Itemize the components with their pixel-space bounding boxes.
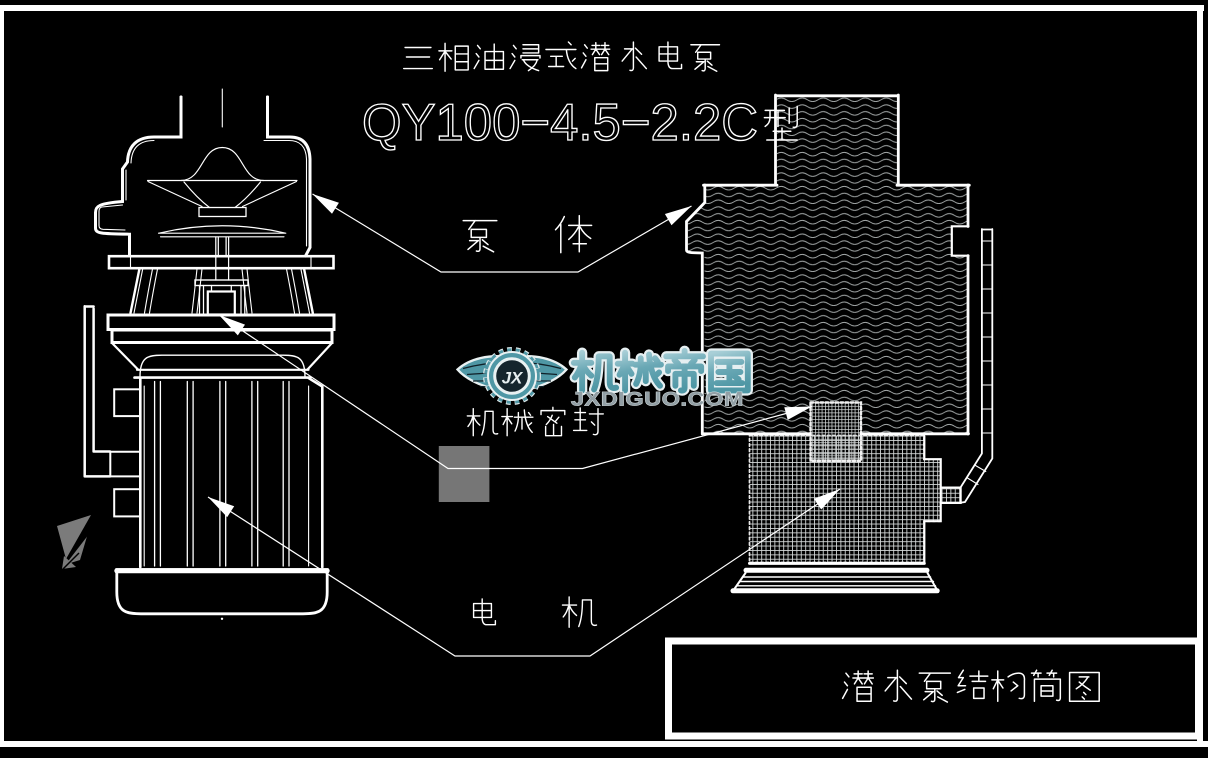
svg-text:JX: JX [502, 369, 524, 388]
svg-text:QY100−4.5−2.2C: QY100−4.5−2.2C [362, 94, 758, 152]
svg-text:JXDIGUO.COM: JXDIGUO.COM [571, 390, 744, 411]
